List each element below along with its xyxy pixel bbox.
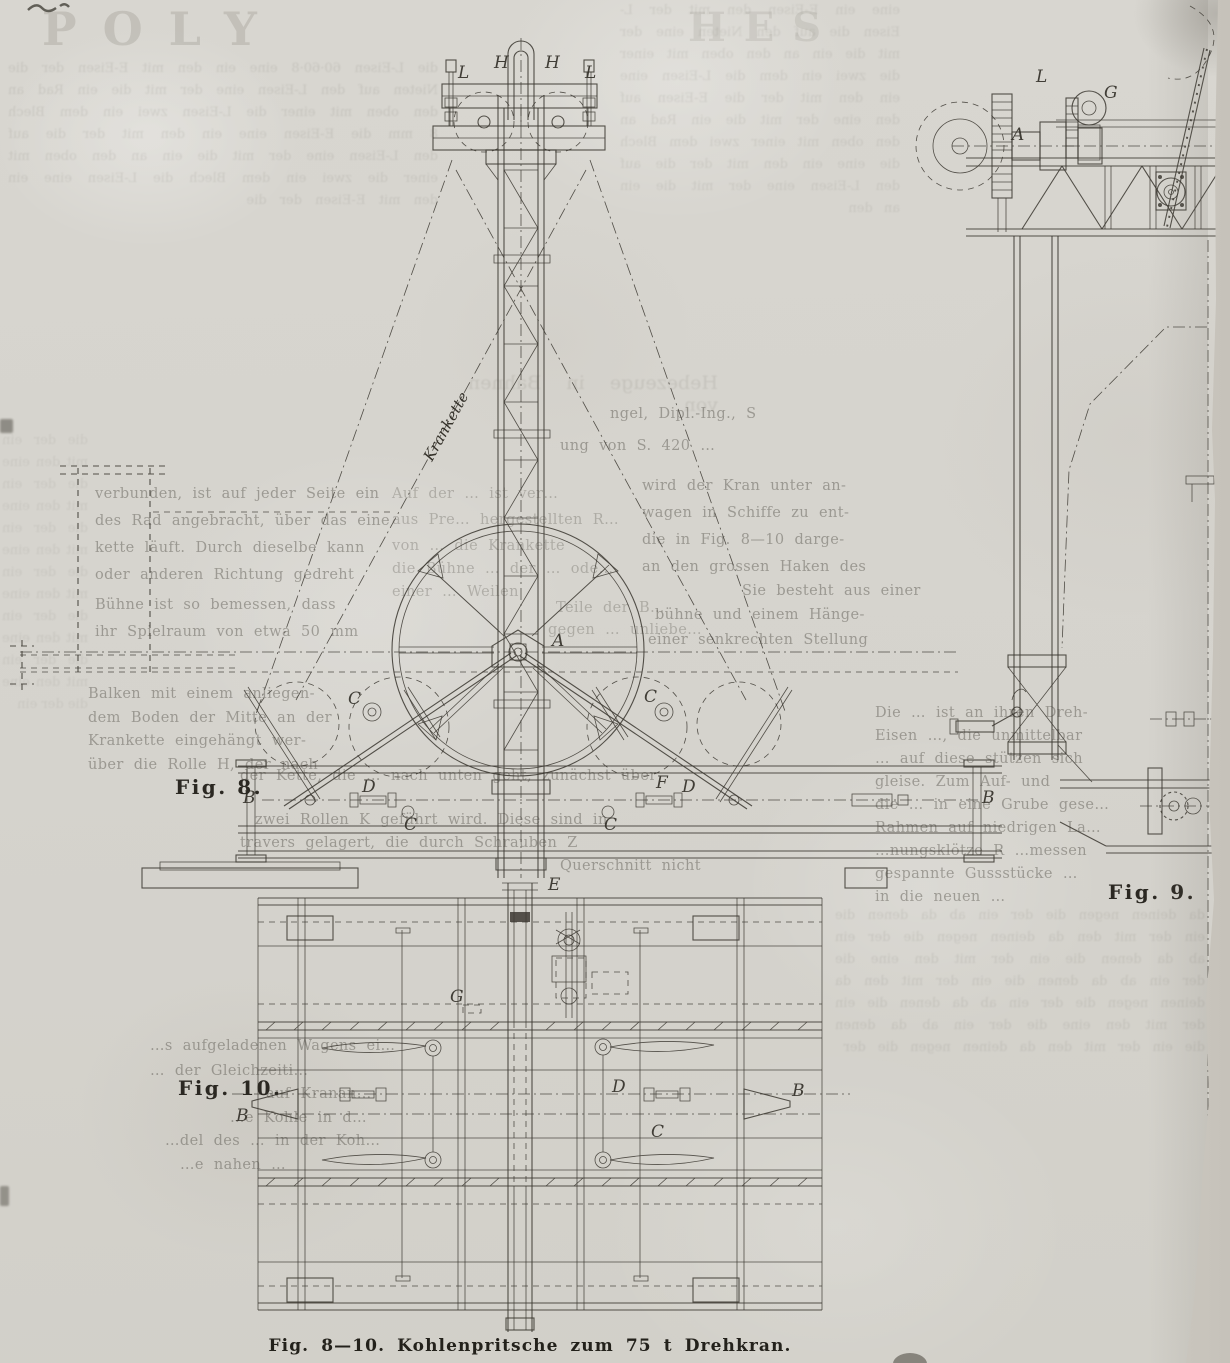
part-letter: D xyxy=(681,777,696,797)
part-letter: E xyxy=(547,875,561,895)
part-letter: C xyxy=(404,815,417,835)
support-blocks xyxy=(142,862,887,888)
plan-spreader-spindles xyxy=(322,928,714,1281)
part-letter: D xyxy=(361,777,376,797)
lower-column-crank xyxy=(950,236,1092,782)
chain-label: Krankette xyxy=(419,389,472,465)
technical-drawings: Krankette A xyxy=(0,0,1230,1363)
fig9-drawing: L G A xyxy=(916,6,1225,1120)
plan-pads xyxy=(287,916,739,1302)
ink-smudge xyxy=(0,1186,9,1206)
part-letter: F xyxy=(655,773,669,793)
plan-winch-detail xyxy=(463,912,628,1018)
part-letter: C xyxy=(644,687,657,707)
fig10-drawing: E G D C B B xyxy=(232,875,850,1332)
lower-rails-bearing xyxy=(1060,476,1225,853)
dashed-outrigger xyxy=(10,466,240,690)
fig9-label: Fig. 9. xyxy=(1108,880,1196,904)
scanned-journal-page: POLY HES die L-Eisen 60·60·8 eine ein de… xyxy=(0,0,1230,1363)
figure-caption: Fig. 8—10. Kohlenpritsche zum 75 t Drehk… xyxy=(250,1336,810,1356)
part-letter: G xyxy=(450,987,464,1007)
fig8-label: Fig. 8. xyxy=(175,775,263,799)
part-letter: A xyxy=(1010,125,1024,145)
truss-girder xyxy=(966,158,1225,236)
part-letter: H xyxy=(493,53,510,73)
part-letter: L xyxy=(1035,67,1047,87)
ink-mark xyxy=(28,4,69,11)
part-letter: H xyxy=(544,53,561,73)
plan-mast-member xyxy=(502,883,538,1332)
part-letter: G xyxy=(1104,83,1118,103)
part-letter: C xyxy=(604,815,617,835)
fig8-drawing: Krankette A xyxy=(10,38,1002,888)
ink-smudge xyxy=(0,419,13,433)
fig10-label: Fig. 10. xyxy=(178,1076,283,1100)
wheel-hub-letter: A xyxy=(550,631,564,651)
diagonal-stays xyxy=(244,653,792,809)
part-letter: C xyxy=(651,1122,664,1142)
part-letter: B xyxy=(791,1081,805,1101)
part-letter: L xyxy=(584,63,596,83)
plan-end-brackets xyxy=(252,1089,790,1119)
part-letter: D xyxy=(611,1077,626,1097)
plan-frame xyxy=(232,898,850,1310)
part-letter: C xyxy=(348,689,361,709)
part-letter: L xyxy=(457,63,469,83)
chain-wheel xyxy=(392,524,644,776)
part-letter: B xyxy=(981,788,995,808)
base-platform xyxy=(236,760,1002,862)
part-letter: B xyxy=(235,1106,249,1126)
hopper-outline xyxy=(1062,240,1208,1120)
